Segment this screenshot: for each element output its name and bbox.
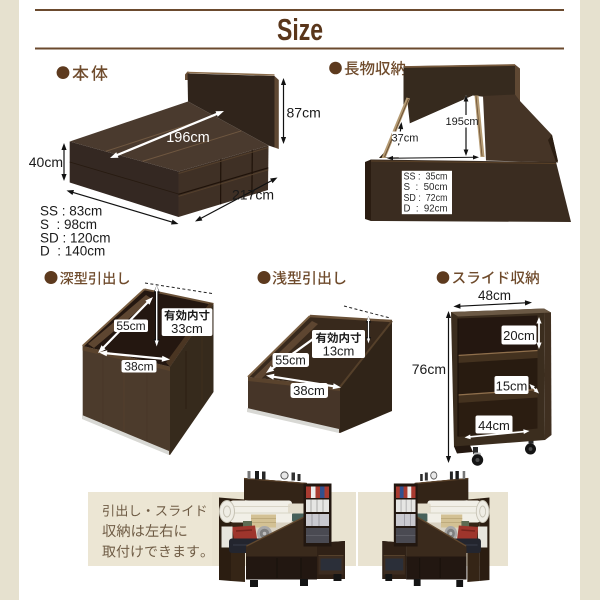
svg-text:S : 50cm: S : 50cm xyxy=(404,182,448,193)
svg-text:D : 92cm: D : 92cm xyxy=(404,204,448,215)
svg-text:217cm: 217cm xyxy=(232,187,274,203)
svg-text:55cm: 55cm xyxy=(275,353,306,367)
svg-text:38cm: 38cm xyxy=(124,359,153,373)
svg-text:20cm: 20cm xyxy=(503,328,535,343)
svg-text:44cm: 44cm xyxy=(478,418,510,433)
svg-text:48cm: 48cm xyxy=(478,288,511,303)
svg-text:15cm: 15cm xyxy=(496,378,528,393)
svg-text:38cm: 38cm xyxy=(293,383,325,398)
svg-text:SD : 72cm: SD : 72cm xyxy=(404,193,448,204)
svg-text:87cm: 87cm xyxy=(287,105,321,121)
svg-text:D : 140cm: D : 140cm xyxy=(40,244,105,259)
svg-text:40cm: 40cm xyxy=(29,154,63,170)
svg-text:196cm: 196cm xyxy=(166,130,210,146)
svg-text:55cm: 55cm xyxy=(116,319,145,333)
svg-text:76cm: 76cm xyxy=(412,361,446,377)
svg-text:SS : 35cm: SS : 35cm xyxy=(404,171,448,182)
svg-text:195cm: 195cm xyxy=(445,116,478,128)
svg-text:37cm: 37cm xyxy=(392,133,419,145)
svg-text:33cm: 33cm xyxy=(171,321,203,336)
svg-text:13cm: 13cm xyxy=(323,344,355,359)
svg-text:Size: Size xyxy=(277,13,323,47)
